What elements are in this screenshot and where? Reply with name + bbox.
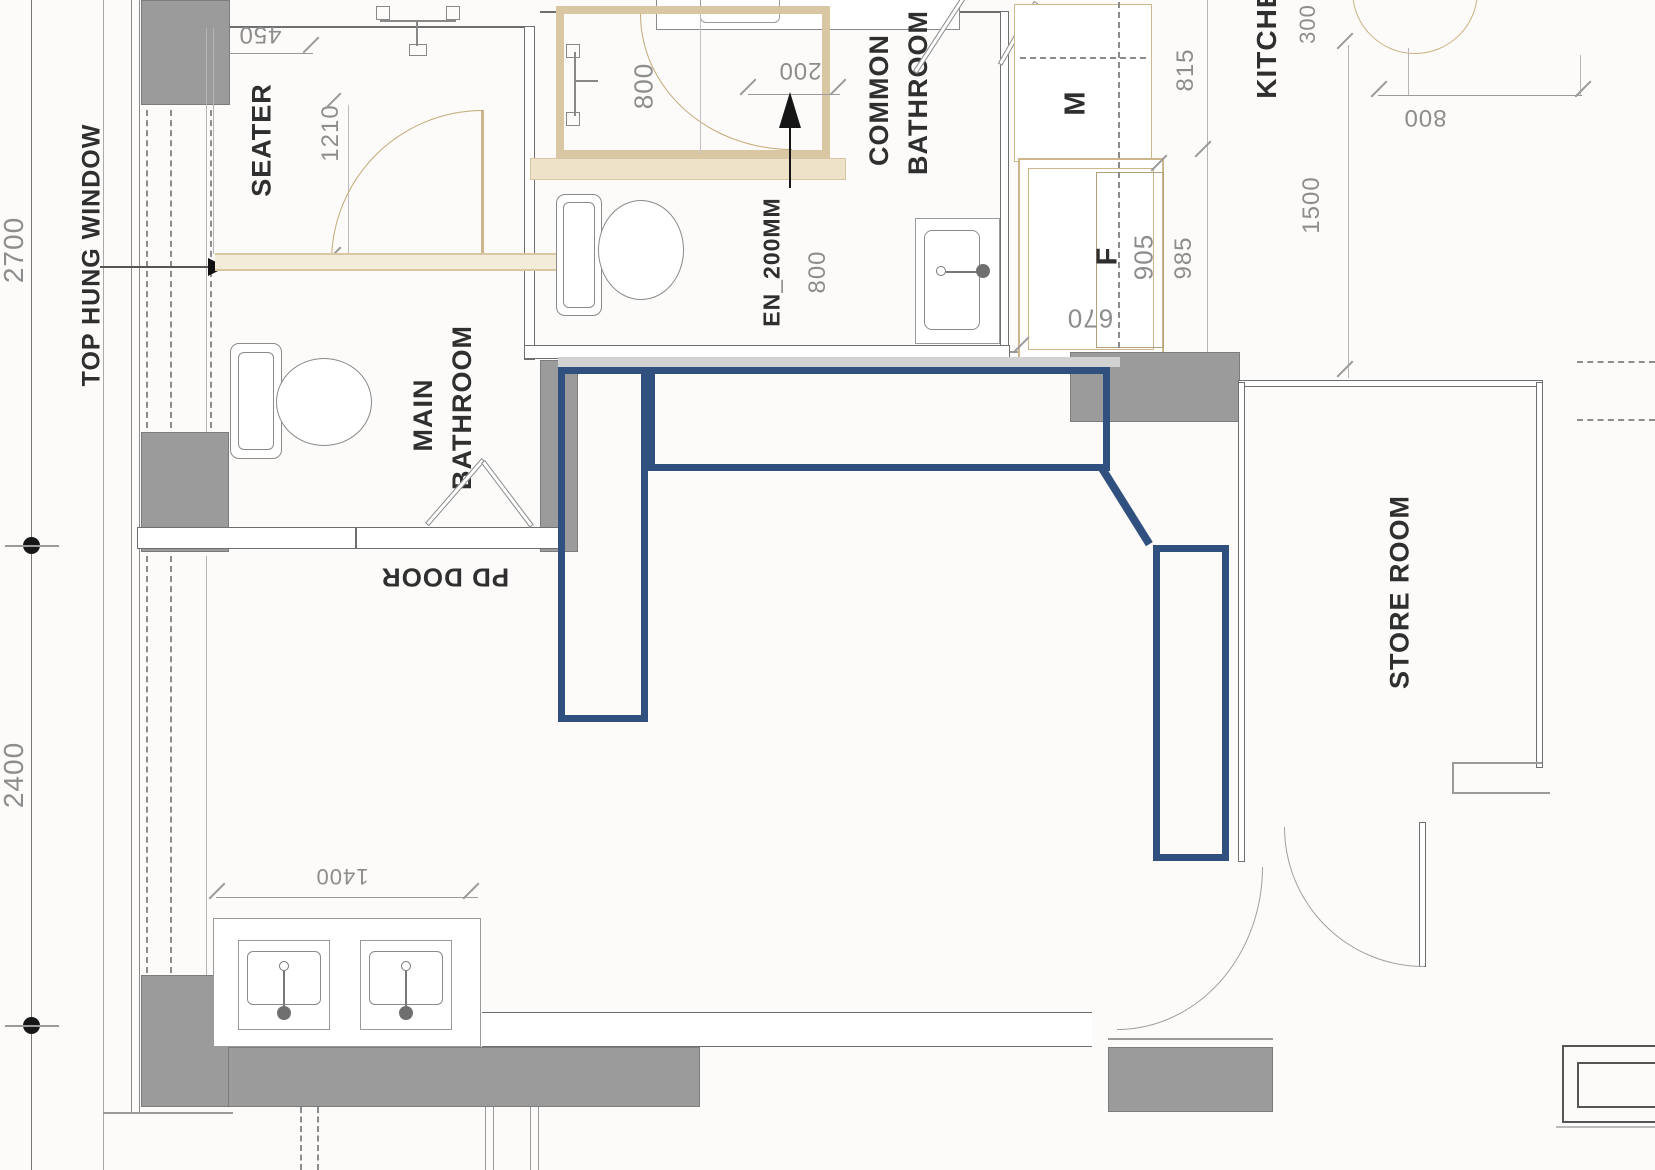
mixer-icon bbox=[576, 80, 598, 82]
wall-segment bbox=[1108, 1047, 1273, 1112]
wall-double-line bbox=[482, 1012, 1092, 1047]
dimension-line bbox=[1378, 95, 1582, 96]
toilet-bowl bbox=[276, 358, 372, 446]
cabinet-m bbox=[1014, 4, 1152, 162]
seater-label: SEATER bbox=[247, 83, 278, 197]
window-frame-line bbox=[206, 556, 207, 975]
highlight-cabinet-left bbox=[558, 367, 648, 722]
highlight-cabinet-diagonal bbox=[1097, 464, 1153, 546]
faucet-icon bbox=[283, 971, 285, 1011]
arrow-stem bbox=[789, 126, 791, 188]
common-bathroom-label: COMMON BATHROOM bbox=[860, 25, 938, 175]
wall-jamb bbox=[355, 527, 357, 549]
dimension-line bbox=[700, 14, 701, 154]
window-dashed-line bbox=[146, 110, 148, 428]
dimension-800-screen: 800 bbox=[804, 250, 832, 293]
window-dashed-line bbox=[170, 556, 172, 973]
wall-double-line bbox=[1238, 382, 1245, 862]
dimension-2700: 2700 bbox=[0, 217, 30, 283]
grid-line-vertical bbox=[31, 0, 32, 1170]
mixer-icon bbox=[574, 52, 576, 116]
wall-line bbox=[1108, 1038, 1273, 1040]
dimension-1400: 1400 bbox=[316, 863, 369, 889]
dimension-450: 450 bbox=[238, 20, 281, 48]
door-swing-arc bbox=[1284, 827, 1424, 967]
grid-marker-tick bbox=[5, 545, 59, 547]
dimension-line bbox=[216, 897, 478, 898]
kitchen-label: KITCHEN bbox=[1251, 0, 1283, 99]
wall-line bbox=[1452, 762, 1542, 764]
dimension-2400: 2400 bbox=[0, 742, 30, 808]
dimension-815: 815 bbox=[1172, 48, 1200, 91]
wall-face-line bbox=[139, 0, 140, 1112]
dimension-1210: 1210 bbox=[317, 104, 345, 161]
mixer-icon bbox=[446, 6, 460, 20]
dimension-tick bbox=[303, 37, 320, 54]
dimension-670: 670 bbox=[1067, 303, 1113, 334]
wardrobe-m-label: M bbox=[1060, 90, 1093, 115]
dimension-tick bbox=[1575, 81, 1592, 98]
wall-face-line bbox=[131, 0, 132, 1112]
leader-line bbox=[100, 266, 212, 268]
dimension-800-shower: 800 bbox=[629, 63, 660, 109]
dimension-300: 300 bbox=[1295, 4, 1321, 44]
floor-plan: 2700 2400 TOP HUNG WINDOW 450 SEATER 121… bbox=[0, 0, 1655, 1170]
wall-shadow bbox=[558, 357, 1120, 367]
dimension-tick bbox=[1337, 361, 1354, 378]
faucet-icon bbox=[976, 264, 990, 278]
faucet-icon bbox=[279, 961, 289, 971]
toilet-tank-inner bbox=[563, 202, 595, 308]
wall-segment bbox=[228, 1047, 700, 1107]
window-dashed-line bbox=[300, 1107, 302, 1170]
room-edge-line bbox=[213, 28, 214, 254]
door-swing-arc bbox=[331, 110, 483, 262]
highlight-cabinet-right bbox=[1153, 545, 1229, 861]
window-frame-line bbox=[206, 28, 207, 432]
top-hung-window-label: TOP HUNG WINDOW bbox=[78, 124, 107, 387]
dimension-line bbox=[217, 53, 313, 54]
wall-double-line bbox=[137, 527, 560, 549]
wall-line bbox=[1556, 1126, 1655, 1128]
window-dashed-line bbox=[146, 556, 148, 973]
grid-marker-tick bbox=[5, 1025, 59, 1027]
toilet-tank-inner bbox=[238, 352, 274, 450]
faucet-icon bbox=[277, 1006, 291, 1020]
faucet-icon bbox=[936, 266, 946, 276]
cabinet-dashed-line bbox=[1020, 57, 1146, 59]
toilet-bowl bbox=[598, 200, 684, 300]
mixer-icon bbox=[376, 6, 390, 20]
kitchen-sink-circle bbox=[1352, 0, 1478, 54]
mixer-icon bbox=[566, 112, 580, 126]
wall-double-line bbox=[524, 26, 535, 360]
wall-line bbox=[485, 1107, 486, 1170]
faucet-icon bbox=[405, 971, 407, 1011]
mixer-icon bbox=[416, 22, 418, 46]
mixer-icon bbox=[380, 20, 456, 22]
sink-basin bbox=[924, 230, 980, 330]
mixer-icon bbox=[409, 44, 427, 56]
dimension-line bbox=[1207, 0, 1208, 360]
faucet-icon bbox=[401, 961, 411, 971]
dimension-985: 985 bbox=[1170, 236, 1198, 279]
shower-curb bbox=[530, 158, 846, 180]
wall-line bbox=[538, 1107, 539, 1170]
mixer-icon bbox=[566, 44, 580, 58]
dimension-tick bbox=[1337, 33, 1354, 50]
dimension-1500: 1500 bbox=[1298, 176, 1326, 233]
wall-dashed-line bbox=[1577, 419, 1655, 421]
dimension-tick bbox=[830, 79, 847, 96]
wall-double-line bbox=[1238, 380, 1543, 387]
wall-line bbox=[1452, 762, 1454, 794]
threshold-band bbox=[215, 253, 560, 271]
faucet-icon bbox=[946, 271, 980, 273]
window-dashed-line bbox=[317, 1107, 319, 1170]
dimension-tick bbox=[1195, 141, 1212, 158]
screen-label: EN_200MM bbox=[759, 197, 786, 326]
door-swing-arc bbox=[1117, 867, 1263, 1030]
wall-outline bbox=[1577, 1062, 1655, 1108]
main-bathroom-label: MAIN BATHROOM bbox=[404, 340, 482, 490]
pd-door-leaf bbox=[481, 460, 534, 528]
dimension-800-kitchen: 800 bbox=[1403, 103, 1446, 131]
wall-line bbox=[493, 1107, 494, 1170]
arrow-up-icon bbox=[779, 92, 801, 128]
highlight-cabinet-top bbox=[648, 367, 1110, 471]
window-dashed-line bbox=[170, 110, 172, 428]
dimension-line bbox=[1348, 45, 1349, 378]
dimension-905: 905 bbox=[1129, 234, 1160, 280]
store-room-label: STORE ROOM bbox=[1385, 495, 1416, 689]
faucet-icon bbox=[399, 1006, 413, 1020]
pd-door-label: PD DOOR bbox=[381, 562, 509, 593]
dimension-200: 200 bbox=[778, 56, 821, 84]
cabinet-dashed-line bbox=[1118, 2, 1120, 358]
wall-double-line bbox=[1536, 382, 1543, 768]
wall-dashed-line bbox=[1577, 361, 1655, 363]
dimension-leader bbox=[1408, 48, 1409, 95]
wall-line bbox=[1452, 792, 1550, 794]
wall-line bbox=[530, 1107, 531, 1170]
wall-face-line bbox=[103, 1112, 233, 1114]
